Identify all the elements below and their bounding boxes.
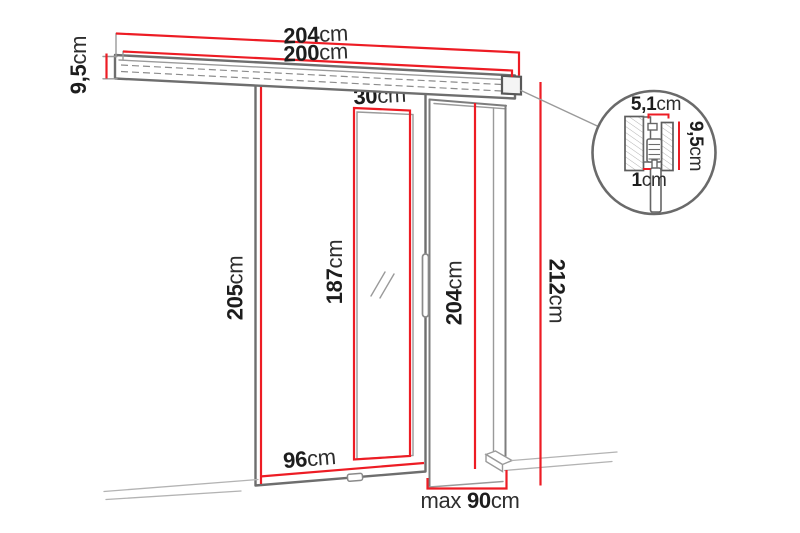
callout-leader-line [521,91,608,132]
door-height-label: 205cm [223,256,248,321]
sliding-door-diagram: 204cm 212cm max 90cm 205cm 96cm 30cm 187… [0,0,800,533]
opening-height-label: 204cm [442,261,467,326]
floor-line-right-upper [512,452,617,461]
doorway-bottom-line [430,482,504,488]
detail-wall-block-left [625,117,644,171]
floor-line-left-lower [106,491,241,500]
floor-line-left-upper [104,480,258,492]
door-bottom-guide [347,473,363,481]
floor-lines-left [104,480,258,500]
total-height-label: 212cm [545,259,570,324]
detail-callout: 5,1cm 9,5cm 1cm [521,91,716,215]
mirror-height-label: 187cm [322,240,347,305]
floor-line-right-lower [505,462,613,471]
detail-track-bracket [648,124,657,131]
track-height-label: 9,5cm [685,121,706,171]
rail-inner-width-label: 200cm [283,38,349,66]
opening-width-label: max 90cm [420,488,519,513]
threshold-step [486,451,512,472]
door-width-label: 96cm [282,444,336,473]
dimensions-right: 204cm 212cm max 90cm [420,82,569,513]
door-handle [423,254,429,317]
detail-wall-block-right [662,123,674,171]
rail-end-cap [502,76,521,95]
gap-label: 1cm [631,170,666,191]
diagram-stage: 204cm 212cm max 90cm 205cm 96cm 30cm 187… [0,0,800,533]
track-width-label: 5,1cm [631,94,681,115]
doorway-head [430,100,507,106]
rail-height-label: 9,5cm [66,36,91,94]
